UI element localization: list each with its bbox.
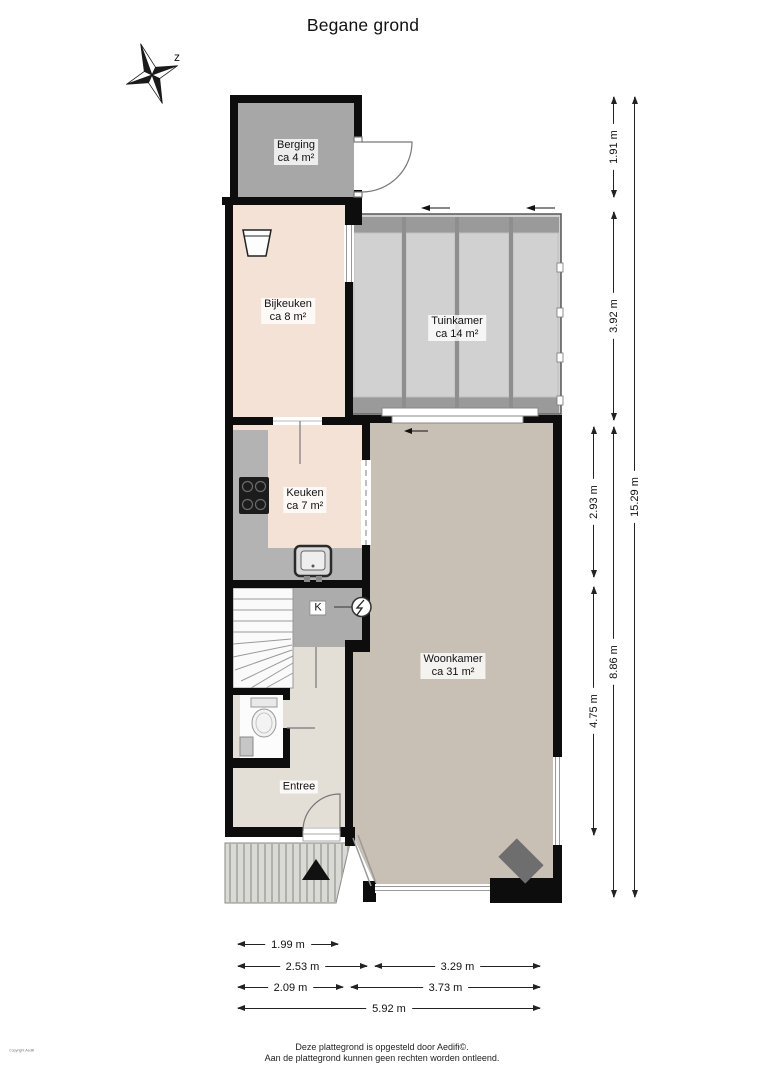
dim-right-3: 4.75 m (593, 587, 594, 835)
compass-icon (115, 35, 187, 113)
toilet-room (240, 695, 283, 758)
room-label-tuinkamer: Tuinkamerca 14 m² (428, 315, 486, 341)
cooktop-icon (239, 477, 269, 514)
footer-disclaimer: Deze plattegrond is opgesteld door Aedif… (265, 1042, 500, 1063)
compass-label: z (174, 50, 180, 64)
floorplan-page: Begane grond z Bergingca 4 m² Bijkeukenc… (0, 0, 764, 1080)
dim-bottom-5: 5.92 m (238, 1008, 540, 1009)
porch (225, 843, 350, 903)
dim-right-4: 8.86 m (613, 427, 614, 897)
stairs (233, 588, 293, 688)
kitchen-sink-icon (295, 546, 331, 582)
footer-line-2: Aan de plattegrond kunnen geen rechten w… (265, 1053, 500, 1064)
room-label-woonkamer: Woonkamerca 31 m² (420, 653, 485, 679)
floorplan-canvas (0, 0, 764, 1080)
berging-door (362, 142, 412, 192)
room-label-keuken: Keukenca 7 m² (283, 487, 326, 513)
closet-floor (293, 588, 362, 647)
dim-right-1: 3.92 m (613, 212, 614, 420)
room-label-berging: Bergingca 4 m² (274, 139, 318, 165)
room-label-entree: Entree (280, 781, 318, 794)
dim-bottom-1: 2.53 m (238, 966, 367, 967)
page-title: Begane grond (307, 15, 419, 36)
dim-bottom-3: 2.09 m (238, 987, 343, 988)
footer-line-1: Deze plattegrond is opgesteld door Aedif… (265, 1042, 500, 1053)
room-label-bijkeuken: Bijkeukenca 8 m² (261, 298, 315, 324)
tuinkamer-structure (351, 205, 563, 414)
toilet-sink-icon (240, 737, 253, 756)
dim-right-5: 15.29 m (634, 97, 635, 897)
laundry-tub-icon (243, 230, 271, 256)
dim-bottom-4: 3.73 m (351, 987, 540, 988)
copyright-text: Copyright Aedifi (9, 1049, 34, 1053)
dim-right-0: 1.91 m (613, 97, 614, 197)
dim-right-2: 2.93 m (593, 427, 594, 577)
toilet-tank (251, 698, 277, 707)
room-label-kast: K (309, 601, 326, 616)
dim-bottom-2: 3.29 m (375, 966, 540, 967)
sliding-arrow-icon (421, 205, 555, 211)
dim-bottom-0: 1.99 m (238, 944, 338, 945)
